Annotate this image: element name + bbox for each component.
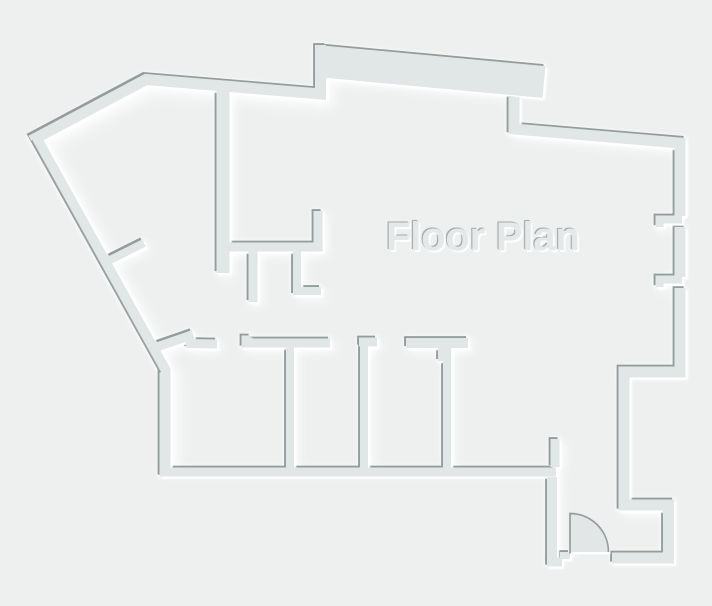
svg-text:Floor Plan: Floor Plan	[386, 215, 580, 259]
